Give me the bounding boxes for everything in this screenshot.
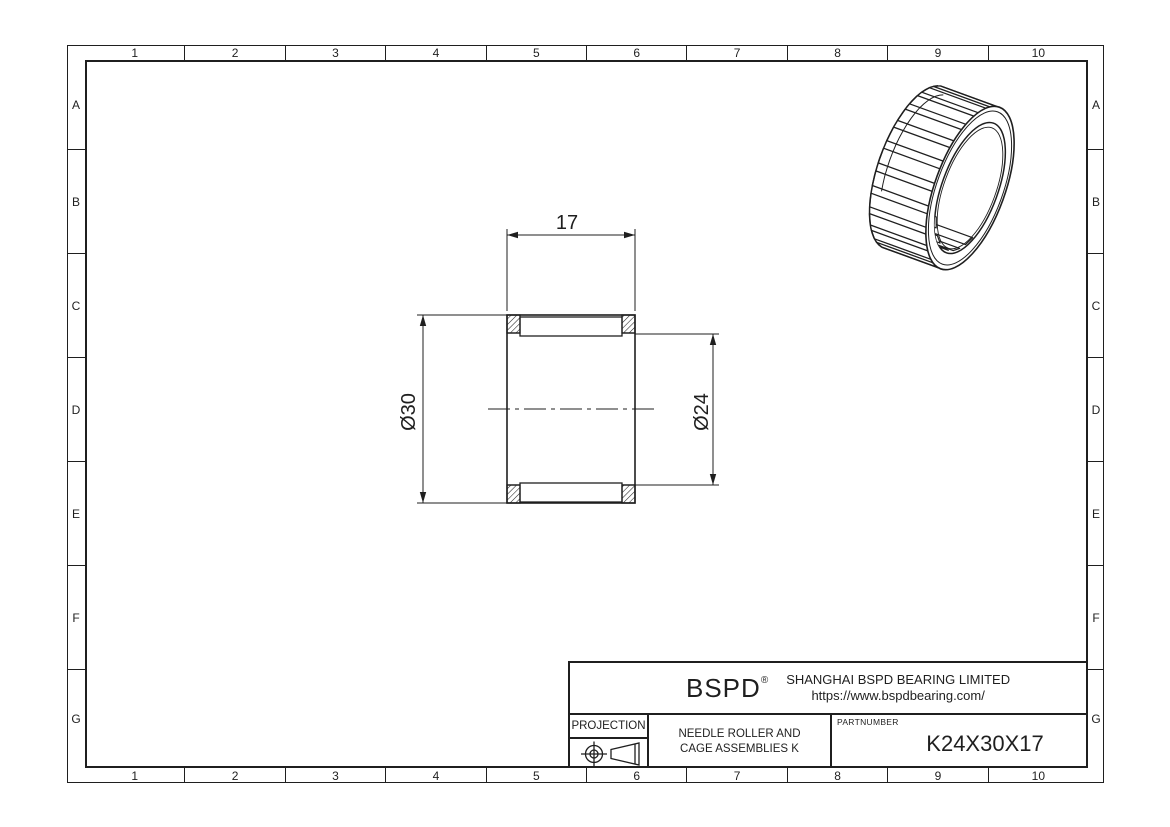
grid-band-left: ABCDEFG	[67, 60, 85, 768]
grid-col-label-bottom-4: 4	[385, 768, 485, 783]
part-description-line1: NEEDLE ROLLER AND	[678, 727, 800, 742]
grid-row-label-right-G: G	[1088, 669, 1104, 768]
company-info: SHANGHAI BSPD BEARING LIMITED https://ww…	[786, 672, 1010, 705]
grid-col-label-top-3: 3	[285, 45, 385, 60]
grid-row-label-right-A: A	[1088, 60, 1104, 149]
grid-band-right: ABCDEFG	[1088, 60, 1104, 768]
grid-col-label-bottom-10: 10	[988, 768, 1088, 783]
part-description-line2: CAGE ASSEMBLIES K	[680, 742, 799, 757]
grid-row-label-left-G: G	[67, 669, 85, 768]
drawing-sheet: 12345678910 12345678910 ABCDEFG ABCDEFG	[0, 0, 1170, 827]
company-name: SHANGHAI BSPD BEARING LIMITED	[786, 672, 1010, 688]
company-logo-wrap: BSPD®	[686, 673, 768, 704]
grid-col-label-top-1: 1	[85, 45, 184, 60]
partnumber-label: PARTNUMBER	[837, 717, 899, 727]
grid-col-label-top-5: 5	[486, 45, 586, 60]
grid-col-label-bottom-2: 2	[184, 768, 284, 783]
partnumber-cell: PARTNUMBER K24X30X17	[832, 715, 1086, 768]
grid-row-label-left-A: A	[67, 60, 85, 149]
partnumber-value: K24X30X17	[832, 731, 1086, 757]
grid-col-label-top-9: 9	[887, 45, 987, 60]
grid-col-label-top-7: 7	[686, 45, 786, 60]
grid-row-label-left-C: C	[67, 253, 85, 357]
grid-col-label-bottom-5: 5	[486, 768, 586, 783]
part-description-cell: NEEDLE ROLLER AND CAGE ASSEMBLIES K	[649, 715, 832, 768]
grid-row-label-left-F: F	[67, 565, 85, 669]
grid-row-label-left-D: D	[67, 357, 85, 461]
first-angle-projection-icon	[570, 739, 647, 768]
projection-label: PROJECTION	[570, 715, 647, 739]
grid-row-label-right-F: F	[1088, 565, 1104, 669]
grid-col-label-top-2: 2	[184, 45, 284, 60]
grid-col-label-bottom-9: 9	[887, 768, 987, 783]
grid-col-label-top-10: 10	[988, 45, 1088, 60]
company-website: https://www.bspdbearing.com/	[786, 688, 1010, 704]
grid-row-label-right-B: B	[1088, 149, 1104, 253]
grid-row-label-right-E: E	[1088, 461, 1104, 565]
company-logo: BSPD	[686, 673, 761, 703]
dim-outer-diameter-text: Ø30	[398, 393, 420, 431]
grid-band-top: 12345678910	[85, 45, 1088, 60]
grid-col-label-bottom-1: 1	[85, 768, 184, 783]
needle-roller-top	[520, 317, 622, 336]
title-block-detail-row: PROJECTION NEEDLE ROLLER AND CAGE ASSEMB…	[570, 715, 1086, 768]
grid-row-label-left-B: B	[67, 149, 85, 253]
needle-roller-bottom	[520, 483, 622, 502]
grid-col-label-bottom-7: 7	[686, 768, 786, 783]
registered-trademark: ®	[761, 675, 768, 686]
dimension-width	[507, 229, 635, 311]
dim-width-text: 17	[556, 212, 578, 234]
grid-band-bottom: 12345678910	[85, 768, 1088, 783]
projection-cell: PROJECTION	[570, 715, 649, 768]
grid-col-label-top-4: 4	[385, 45, 485, 60]
title-block: BSPD® SHANGHAI BSPD BEARING LIMITED http…	[568, 661, 1088, 768]
grid-col-label-bottom-8: 8	[787, 768, 887, 783]
bearing-3d-view	[864, 86, 1033, 281]
grid-row-label-left-E: E	[67, 461, 85, 565]
bearing-section-view: 17 Ø30 Ø24	[398, 212, 719, 503]
title-block-company-row: BSPD® SHANGHAI BSPD BEARING LIMITED http…	[570, 663, 1086, 715]
grid-col-label-bottom-3: 3	[285, 768, 385, 783]
grid-row-label-right-D: D	[1088, 357, 1104, 461]
grid-col-label-bottom-6: 6	[586, 768, 686, 783]
grid-col-label-top-8: 8	[787, 45, 887, 60]
grid-col-label-top-6: 6	[586, 45, 686, 60]
dim-inner-diameter-text: Ø24	[691, 393, 713, 431]
grid-row-label-right-C: C	[1088, 253, 1104, 357]
